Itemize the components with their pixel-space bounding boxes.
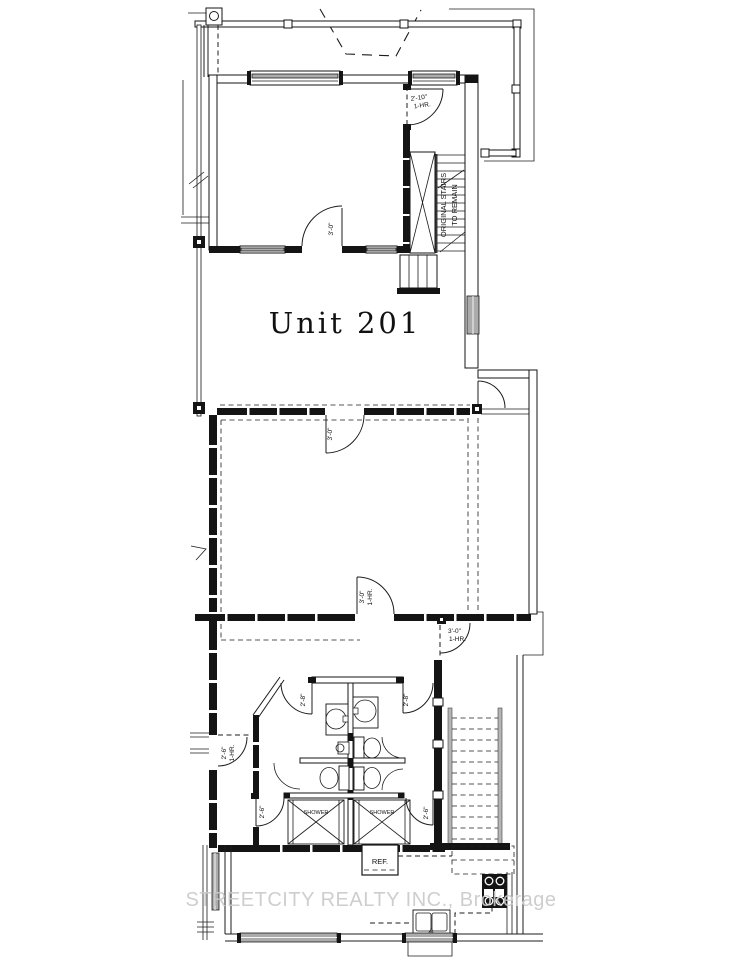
door-shower-right-size-label: 2'-6" bbox=[423, 806, 430, 820]
door-top-room-size-label: 3'-0" bbox=[328, 222, 335, 236]
watermark: STREETCITY REALTY INC., Brokerage bbox=[185, 889, 556, 911]
keynote-mark bbox=[191, 546, 206, 560]
top-room-bottom-wall bbox=[209, 246, 410, 253]
shower-left-label: SHOWER bbox=[304, 810, 329, 816]
door-bath-right: 2'-8" bbox=[403, 683, 433, 713]
roof-outline-dashed bbox=[320, 9, 421, 56]
deck-top-railing bbox=[188, 8, 521, 77]
door-hall-left-size-label: 2'-6" bbox=[221, 746, 228, 760]
shower-wall bbox=[284, 793, 404, 798]
right-corridor bbox=[472, 370, 537, 614]
door-middle-top: 3'-0" bbox=[326, 415, 364, 453]
door-middle-bottom: 3'-0" 1-HR. bbox=[357, 577, 394, 614]
door-landing-rating-label: 1-HR. bbox=[413, 101, 431, 110]
right-outer-wall bbox=[517, 612, 543, 934]
floor-plan-page: 2'-10" 1-HR. 3'-0" bbox=[0, 0, 742, 960]
door-landing: 2'-10" 1-HR. bbox=[403, 84, 443, 130]
door-middle-bottom-rating-label: 1-HR. bbox=[367, 588, 374, 605]
door-shower-left-size-label: 2'-6" bbox=[259, 805, 266, 819]
sink-left bbox=[326, 704, 348, 735]
floor-plan-drawing: 2'-10" 1-HR. 3'-0" bbox=[0, 0, 742, 960]
sink-right bbox=[353, 697, 378, 728]
fridge: REF. bbox=[362, 845, 398, 875]
door-hall-left-rating-label: 1-HR. bbox=[229, 744, 236, 761]
stairs-note-line1: ORIGINAL STAIRS bbox=[439, 173, 448, 237]
shower-right: SHOWER bbox=[354, 800, 410, 844]
toilet-right-1 bbox=[354, 737, 381, 758]
door-hall-right-size-label: 3'-0" bbox=[448, 628, 462, 635]
door-shower-left: 2'-6" bbox=[256, 798, 284, 826]
toilet-right-2 bbox=[354, 767, 381, 790]
door-hall-left: 2'-6" 1-HR. bbox=[218, 735, 250, 766]
deck-right-outline bbox=[449, 9, 534, 161]
wall-fixture bbox=[336, 742, 349, 754]
window-right-wall bbox=[467, 296, 479, 334]
left-balcony-edge bbox=[181, 25, 209, 753]
dividing-wall bbox=[217, 405, 470, 415]
kitchen-sink bbox=[413, 910, 450, 935]
middle-room bbox=[195, 415, 531, 640]
toilet-left bbox=[320, 766, 349, 790]
fridge-label: REF. bbox=[372, 857, 388, 866]
door-bath-left: 2'-8" bbox=[281, 683, 312, 714]
door-bath-left-size-label: 2'-8" bbox=[300, 693, 307, 707]
stairs-note-line2: TO REMAIN bbox=[450, 184, 459, 226]
window-top-left bbox=[247, 71, 343, 85]
wall-break-mark bbox=[189, 172, 204, 184]
stair-winders bbox=[397, 255, 440, 294]
window-top-right bbox=[408, 71, 460, 85]
shower-right-label: SHOWER bbox=[370, 810, 395, 816]
door-middle-top-size-label: 3'-0" bbox=[327, 427, 334, 441]
bottom-wall bbox=[225, 933, 543, 956]
door-hall-right-rating-label: 1-HR. bbox=[449, 636, 466, 643]
door-middle-bottom-size-label: 3'-0" bbox=[359, 590, 366, 604]
entry-stub bbox=[408, 942, 452, 956]
corner-post-icon bbox=[206, 8, 222, 25]
left-wall-lower bbox=[209, 621, 217, 848]
unit-title: Unit 201 bbox=[269, 306, 422, 340]
stairwell-top: ORIGINAL STAIRS TO REMAIN bbox=[397, 128, 465, 294]
door-hall-right: 3'-0" 1-HR. bbox=[437, 616, 470, 658]
door-bath-right-size-label: 2'-8" bbox=[403, 693, 410, 707]
shower-left: SHOWER bbox=[288, 800, 344, 844]
door-top-room: 3'-0" bbox=[302, 206, 342, 246]
